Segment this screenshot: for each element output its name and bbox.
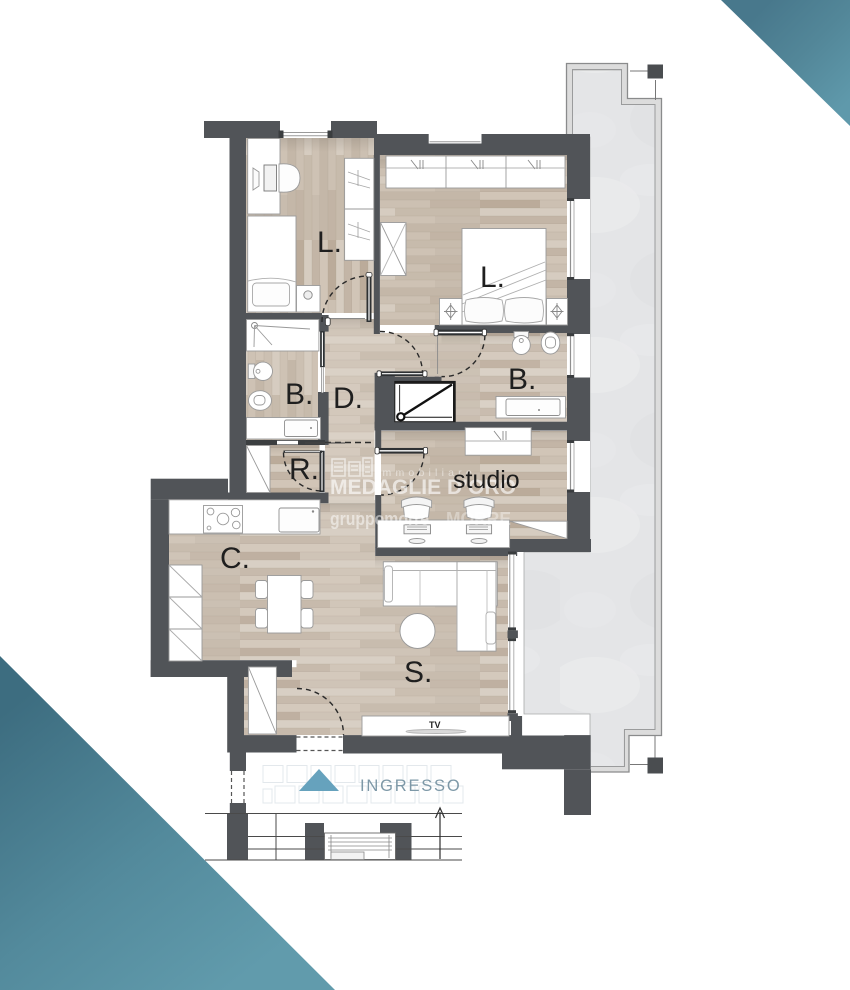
svg-text:C.: C. [220, 542, 250, 575]
svg-text:R.: R. [289, 453, 319, 486]
svg-text:MORRE: MORRE [446, 509, 511, 529]
svg-text:INGRESSO: INGRESSO [360, 777, 462, 795]
svg-text:B.: B. [508, 363, 536, 396]
svg-text:gruppomorre: gruppomorre [330, 509, 429, 529]
svg-text:L.: L. [480, 261, 505, 294]
svg-text:TV: TV [429, 720, 441, 730]
svg-text:L.: L. [317, 226, 342, 259]
svg-text:S.: S. [404, 656, 432, 689]
svg-text:B.: B. [285, 378, 313, 411]
svg-text:studio: studio [453, 466, 520, 494]
svg-text:D.: D. [333, 382, 363, 415]
